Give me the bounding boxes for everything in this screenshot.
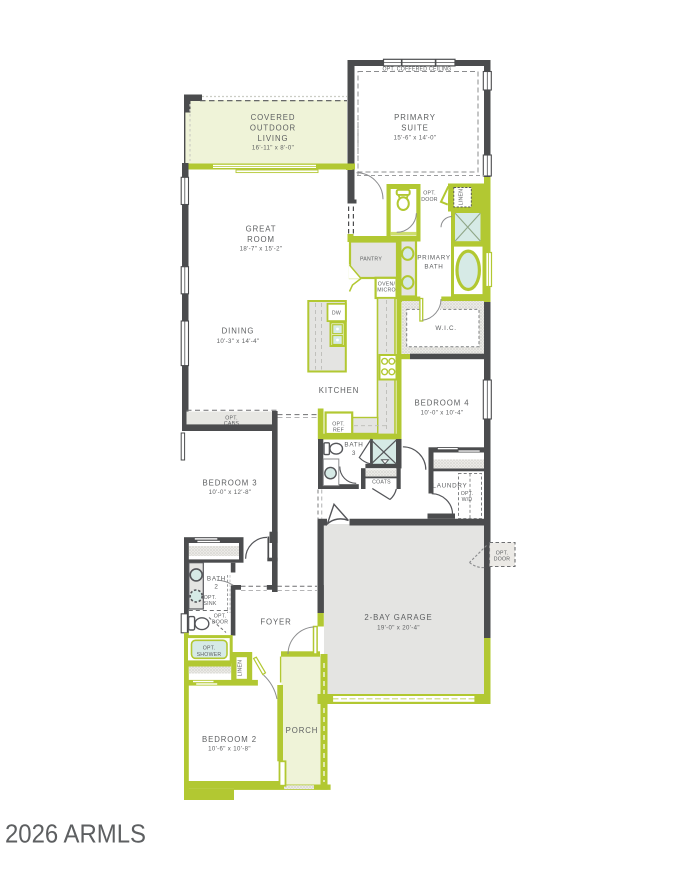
svg-text:PANTRY: PANTRY	[360, 257, 382, 263]
svg-text:SUITE: SUITE	[401, 124, 428, 133]
svg-text:DOOR: DOOR	[494, 557, 511, 563]
svg-text:ROOM: ROOM	[247, 235, 275, 244]
svg-text:FOYER: FOYER	[260, 618, 291, 627]
svg-text:MICRO: MICRO	[377, 288, 396, 294]
svg-text:SHOWER: SHOWER	[197, 652, 222, 658]
svg-text:KITCHEN: KITCHEN	[319, 386, 360, 395]
svg-text:OPT.: OPT.	[423, 191, 436, 197]
svg-text:OPT.: OPT.	[203, 646, 216, 652]
svg-text:LAUNDRY: LAUNDRY	[433, 483, 468, 490]
svg-text:LINEN: LINEN	[238, 660, 244, 677]
svg-text:CABS: CABS	[224, 421, 239, 427]
svg-text:COVERED: COVERED	[251, 113, 296, 122]
svg-text:BEDROOM 4: BEDROOM 4	[415, 399, 470, 408]
svg-text:PRIMARY: PRIMARY	[417, 255, 451, 262]
svg-text:DOOR: DOOR	[421, 197, 438, 203]
svg-text:16'-11" x 8'-0": 16'-11" x 8'-0"	[252, 145, 294, 152]
svg-text:LIVING: LIVING	[258, 134, 289, 143]
svg-text:LINEN: LINEN	[459, 189, 465, 206]
svg-text:2026 ARMLS: 2026 ARMLS	[5, 819, 146, 849]
svg-text:REF: REF	[333, 428, 344, 434]
svg-text:10'-0" x 10'-4": 10'-0" x 10'-4"	[421, 410, 464, 417]
svg-text:BATH: BATH	[344, 442, 363, 449]
svg-text:GREAT: GREAT	[246, 225, 277, 234]
svg-text:18'-7" x 15'-2": 18'-7" x 15'-2"	[240, 246, 283, 253]
svg-text:BATH: BATH	[424, 264, 443, 271]
svg-text:W/D: W/D	[462, 497, 473, 503]
svg-text:PORCH: PORCH	[286, 726, 319, 735]
svg-text:10'-3" x 14'-4": 10'-3" x 14'-4"	[217, 338, 260, 345]
svg-text:2: 2	[214, 584, 218, 591]
svg-text:OPT. COFFERED CEILING: OPT. COFFERED CEILING	[383, 67, 452, 73]
svg-text:10'-6" x 10'-8": 10'-6" x 10'-8"	[208, 746, 251, 753]
svg-text:DW: DW	[332, 311, 341, 317]
svg-text:2-BAY GARAGE: 2-BAY GARAGE	[364, 613, 432, 622]
svg-text:10'-0" x 12'-8": 10'-0" x 12'-8"	[209, 489, 252, 496]
svg-text:DINING: DINING	[222, 327, 255, 336]
svg-text:COATS: COATS	[372, 480, 391, 486]
svg-text:BATH: BATH	[207, 576, 226, 583]
svg-text:SINK: SINK	[203, 601, 216, 607]
svg-text:W.I.C.: W.I.C.	[435, 325, 456, 332]
svg-text:3: 3	[352, 450, 356, 457]
svg-text:19'-0" x 20'-4": 19'-0" x 20'-4"	[377, 625, 420, 632]
svg-text:15'-6" x 14'-0": 15'-6" x 14'-0"	[394, 135, 437, 142]
svg-text:OUTDOOR: OUTDOOR	[250, 124, 296, 133]
svg-text:DOOR: DOOR	[212, 620, 229, 626]
svg-text:PRIMARY: PRIMARY	[394, 113, 436, 122]
svg-text:BEDROOM 3: BEDROOM 3	[203, 479, 258, 488]
svg-text:BEDROOM 2: BEDROOM 2	[202, 735, 257, 744]
